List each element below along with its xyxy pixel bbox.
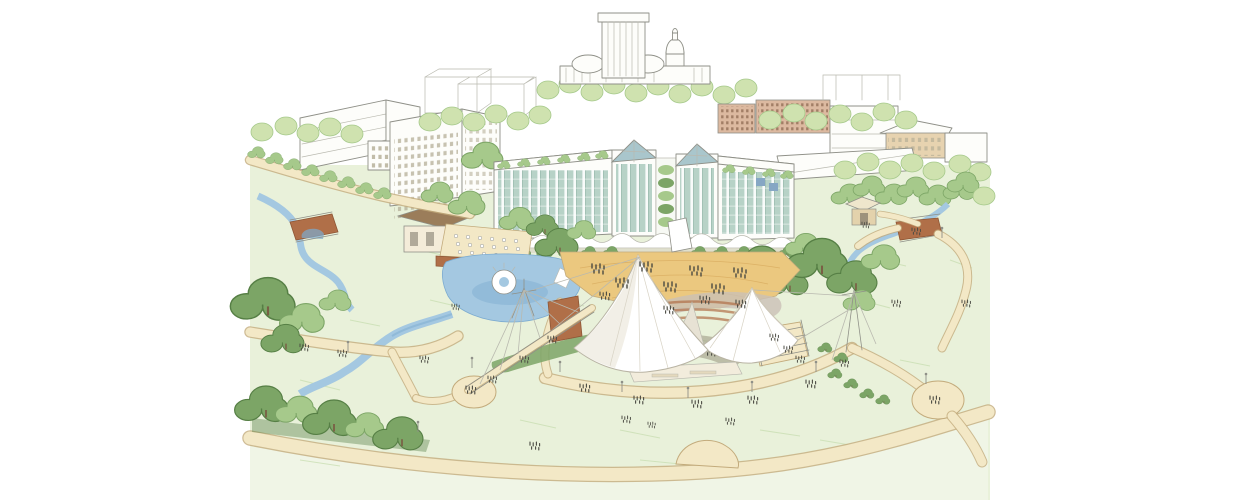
sign-panel bbox=[756, 178, 765, 186]
dome-left bbox=[572, 55, 604, 73]
rendering-canvas bbox=[0, 0, 1235, 500]
sign-panel bbox=[769, 183, 778, 191]
rendering-page bbox=[0, 0, 1235, 500]
old-capitol-dome bbox=[666, 29, 684, 67]
capitol-complex bbox=[560, 13, 710, 84]
capitol-tower bbox=[602, 20, 645, 78]
atrium-tower-left bbox=[612, 140, 656, 236]
